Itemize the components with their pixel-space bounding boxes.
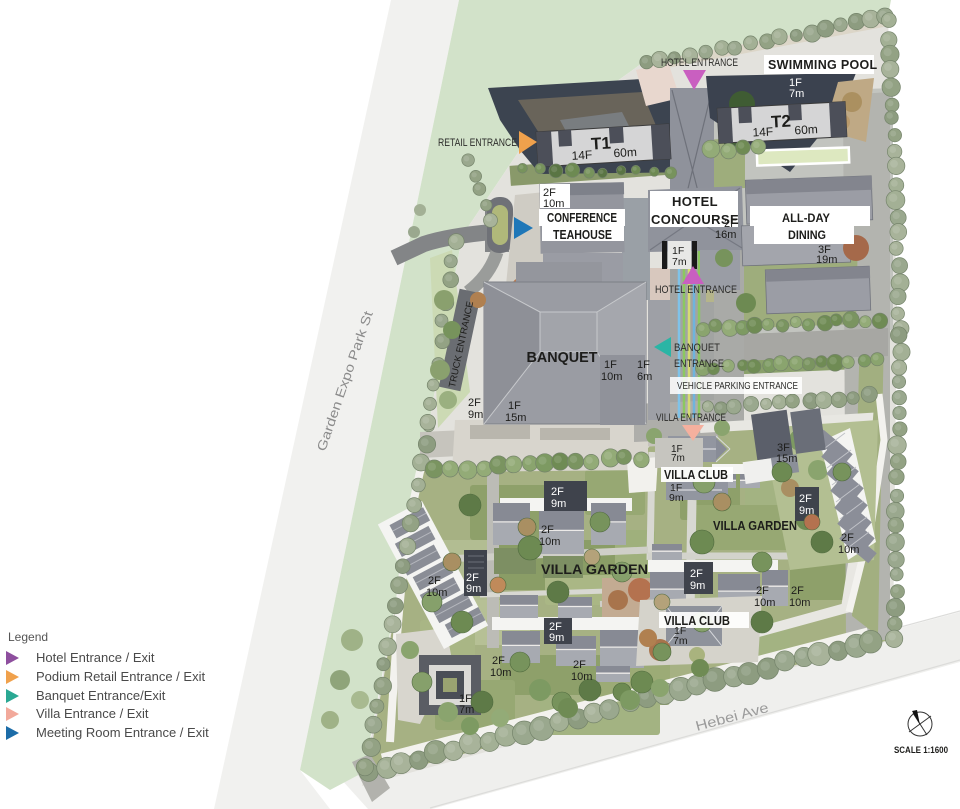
svg-text:Hotel Entrance / Exit: Hotel Entrance / Exit xyxy=(36,650,155,665)
svg-text:9m: 9m xyxy=(468,409,483,421)
svg-text:7m: 7m xyxy=(459,704,474,716)
svg-text:14F: 14F xyxy=(571,148,593,163)
svg-text:6m: 6m xyxy=(637,371,652,383)
svg-text:9m: 9m xyxy=(549,632,564,644)
svg-text:ENTRANCE: ENTRANCE xyxy=(674,358,724,370)
svg-text:2F: 2F xyxy=(573,659,586,671)
svg-text:7m: 7m xyxy=(673,635,688,647)
svg-text:60m: 60m xyxy=(794,122,818,137)
svg-text:19m: 19m xyxy=(816,254,837,266)
svg-text:2F: 2F xyxy=(541,524,554,536)
svg-text:7m: 7m xyxy=(671,453,685,464)
svg-text:BANQUET: BANQUET xyxy=(527,349,598,366)
svg-text:14F: 14F xyxy=(752,124,773,139)
svg-text:T1: T1 xyxy=(590,133,611,153)
svg-text:9m: 9m xyxy=(669,492,684,504)
svg-text:Villa Entrance / Exit: Villa Entrance / Exit xyxy=(36,706,149,721)
svg-text:HOTEL ENTRANCE: HOTEL ENTRANCE xyxy=(655,284,737,296)
svg-text:ALL-DAY: ALL-DAY xyxy=(782,211,830,225)
svg-text:VEHICLE PARKING ENTRANCE: VEHICLE PARKING ENTRANCE xyxy=(677,380,798,392)
svg-text:HOTEL: HOTEL xyxy=(672,194,718,209)
svg-text:10m: 10m xyxy=(601,371,622,383)
svg-text:VILLA CLUB: VILLA CLUB xyxy=(664,467,728,482)
svg-text:15m: 15m xyxy=(776,453,797,465)
svg-text:VILLA GARDEN: VILLA GARDEN xyxy=(541,562,648,577)
svg-text:SWIMMING POOL: SWIMMING POOL xyxy=(768,58,878,72)
svg-text:VILLA ENTRANCE: VILLA ENTRANCE xyxy=(656,412,726,424)
svg-text:BANQUET: BANQUET xyxy=(674,342,720,354)
svg-text:16m: 16m xyxy=(715,229,736,241)
svg-text:2F: 2F xyxy=(468,397,481,409)
svg-text:7m: 7m xyxy=(789,88,804,100)
svg-text:10m: 10m xyxy=(426,587,447,599)
svg-text:TEAHOUSE: TEAHOUSE xyxy=(553,228,612,242)
svg-text:CONFERENCE: CONFERENCE xyxy=(547,211,617,225)
svg-text:10m: 10m xyxy=(838,544,859,556)
svg-text:10m: 10m xyxy=(754,597,775,609)
svg-text:60m: 60m xyxy=(613,145,637,160)
svg-text:15m: 15m xyxy=(505,412,526,424)
svg-text:1F: 1F xyxy=(508,400,521,412)
svg-text:Meeting Room Entrance / Exit: Meeting Room Entrance / Exit xyxy=(36,725,209,740)
svg-text:2F: 2F xyxy=(492,655,505,667)
svg-text:2F: 2F xyxy=(791,585,804,597)
svg-text:2F: 2F xyxy=(428,575,441,587)
svg-text:9m: 9m xyxy=(690,580,705,592)
svg-text:10m: 10m xyxy=(543,198,564,210)
svg-text:9m: 9m xyxy=(551,498,566,510)
svg-text:T2: T2 xyxy=(771,112,792,132)
svg-text:10m: 10m xyxy=(490,667,511,679)
svg-text:VILLA GARDEN: VILLA GARDEN xyxy=(713,519,797,533)
svg-text:2F: 2F xyxy=(841,532,854,544)
svg-text:2F: 2F xyxy=(799,493,812,505)
svg-text:Banquet Entrance/Exit: Banquet Entrance/Exit xyxy=(36,688,166,703)
svg-text:1F: 1F xyxy=(604,359,617,371)
svg-text:Legend: Legend xyxy=(8,630,48,644)
svg-text:HOTEL ENTRANCE: HOTEL ENTRANCE xyxy=(661,57,738,69)
svg-text:2F: 2F xyxy=(756,585,769,597)
svg-text:2F: 2F xyxy=(690,568,703,580)
svg-text:7m: 7m xyxy=(672,256,687,268)
svg-text:1F: 1F xyxy=(637,359,650,371)
svg-text:10m: 10m xyxy=(789,597,810,609)
svg-text:10m: 10m xyxy=(571,671,592,683)
svg-text:RETAIL ENTRANCE: RETAIL ENTRANCE xyxy=(438,137,517,149)
svg-text:2F: 2F xyxy=(551,486,564,498)
svg-text:DINING: DINING xyxy=(788,228,826,242)
svg-text:9m: 9m xyxy=(466,583,481,595)
svg-text:Podium Retail Entrance / Exit: Podium Retail Entrance / Exit xyxy=(36,669,205,684)
svg-text:10m: 10m xyxy=(539,536,560,548)
svg-text:SCALE 1:1600: SCALE 1:1600 xyxy=(894,745,948,755)
